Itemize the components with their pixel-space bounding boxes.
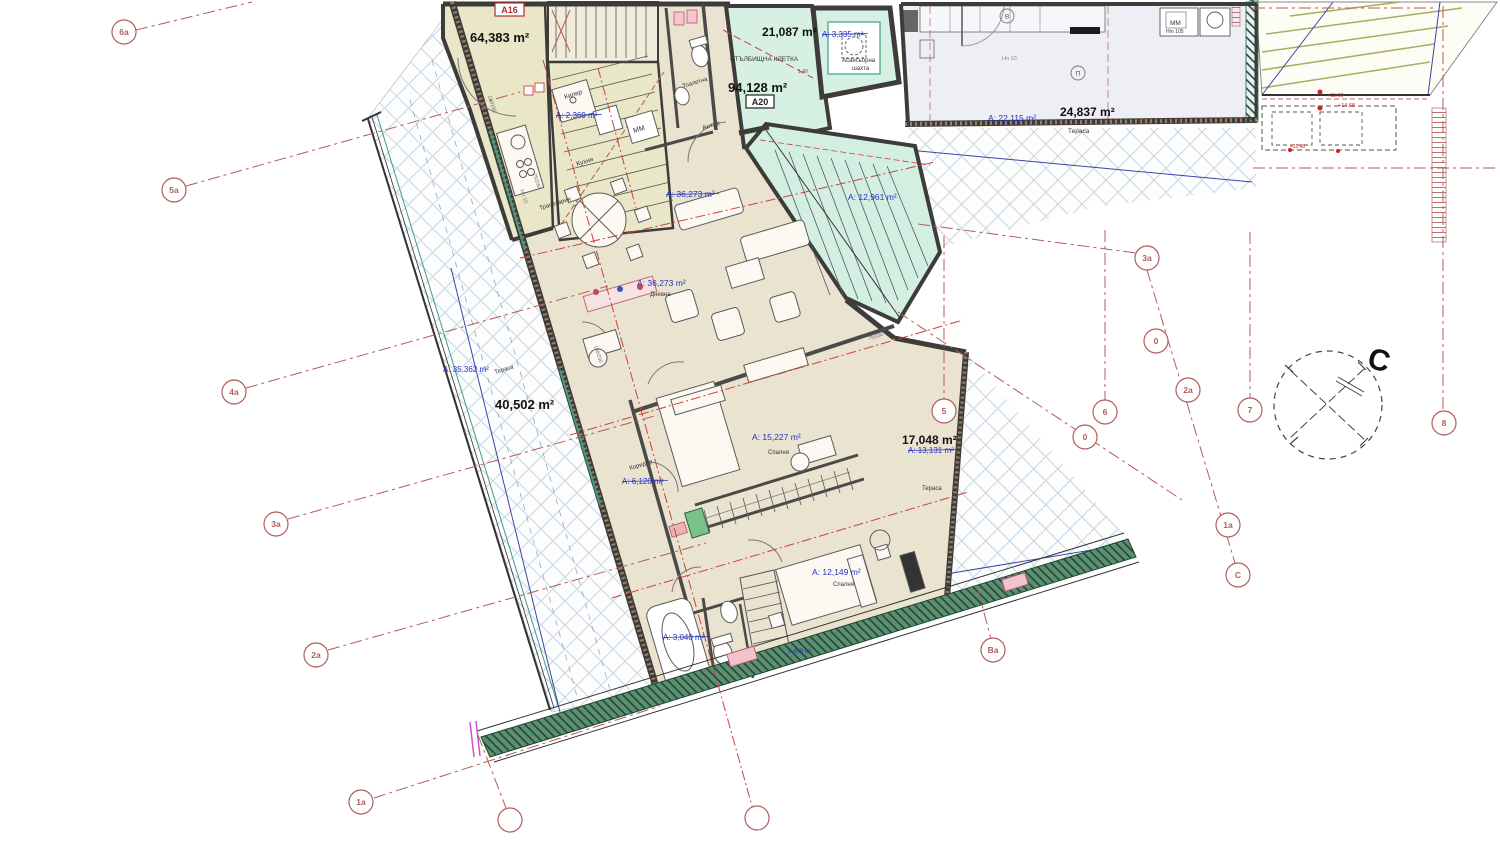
room-name-label: Спалня [768,450,789,456]
small-marker-label: П [1076,71,1081,78]
north-letter: С [1364,342,1393,379]
grid-marker-label: C [1235,570,1241,580]
grid-marker-empty [745,806,769,830]
grid-marker-label: 6 [1103,407,1108,417]
room-name-label: шахта [852,66,870,72]
grid-marker-label: 4a [229,387,239,397]
elevation-label: +14.68 [1338,103,1355,109]
grid-marker-label: 5a [169,185,179,195]
grid-marker-label: 0 [1154,336,1159,346]
grid-marker-label: 1a [356,797,366,807]
room-name-label: Тераса [1068,128,1090,135]
grid-marker-label: Ba [988,645,999,655]
floor-plan-page: 64,383 m²21,087 m²94,128 m²24,837 m²40,5… [0,0,1500,848]
grid-marker-label: 0 [1083,432,1088,442]
area-total-label: 94,128 m² [728,80,788,95]
tag-box-label: A20 [752,97,769,107]
room-name-label: Hm 105 [1166,29,1184,35]
staircase-upper-run [548,2,658,62]
grid-marker-label: 2a [1183,385,1193,395]
room-area-label: А: 15,227 m² [752,432,801,442]
grid-marker-label: 6a [119,27,129,37]
dimension-label: Hn 10 [1002,56,1017,62]
grid-marker-label: 1a [1223,520,1233,530]
elevator-shaft [813,8,899,97]
roof-top-right [1250,0,1497,242]
room-area-label: А: 12,961 m² [848,192,897,202]
grid-marker-label: 7 [1248,405,1253,415]
grid-marker-empty [498,808,522,832]
room-area-label: А: 12,149 m² [812,567,861,577]
area-total-label: 24,837 m² [1060,105,1115,119]
room-name-label: СТЪЛБИЩНА КЛЕТКА [730,56,799,63]
grid-marker-label: 8 [1442,418,1447,428]
room-name-label: Асансьорна [842,58,876,64]
room-area-label: А: 36,273 m² [637,278,686,288]
area-total-label: 17,048 m² [902,433,957,447]
room-name-label: МM [1170,20,1181,27]
elevation-label: +11.48 [1290,144,1305,150]
floor-plan-drawing: 64,383 m²21,087 m²94,128 m²24,837 m²40,5… [0,0,1500,848]
room-name-label: Дневна [650,292,671,298]
elevation-label: 1.40 [798,69,808,75]
grid-marker-label: 2a [311,650,321,660]
room-name-label: Спалня [833,582,854,588]
area-total-label: 21,087 m² [762,25,817,39]
grid-marker-label: 3a [1142,253,1152,263]
grid-marker-label: 5 [942,406,947,416]
tag-box-label: A16 [501,5,518,15]
grid-marker-label: 3a [271,519,281,529]
room-area-label: А: 35,362 m² [443,365,489,374]
small-marker-label: В [1005,14,1009,21]
room-name-label: Тераса [922,486,942,492]
area-total-label: 40,502 m² [495,397,555,412]
room-area-label: 3,489 m² [788,649,812,655]
area-total-label: 64,383 m² [470,30,530,45]
room-area-label: А: 22,115 m² [988,113,1036,123]
elevation-label: +11.60 [1327,93,1344,99]
